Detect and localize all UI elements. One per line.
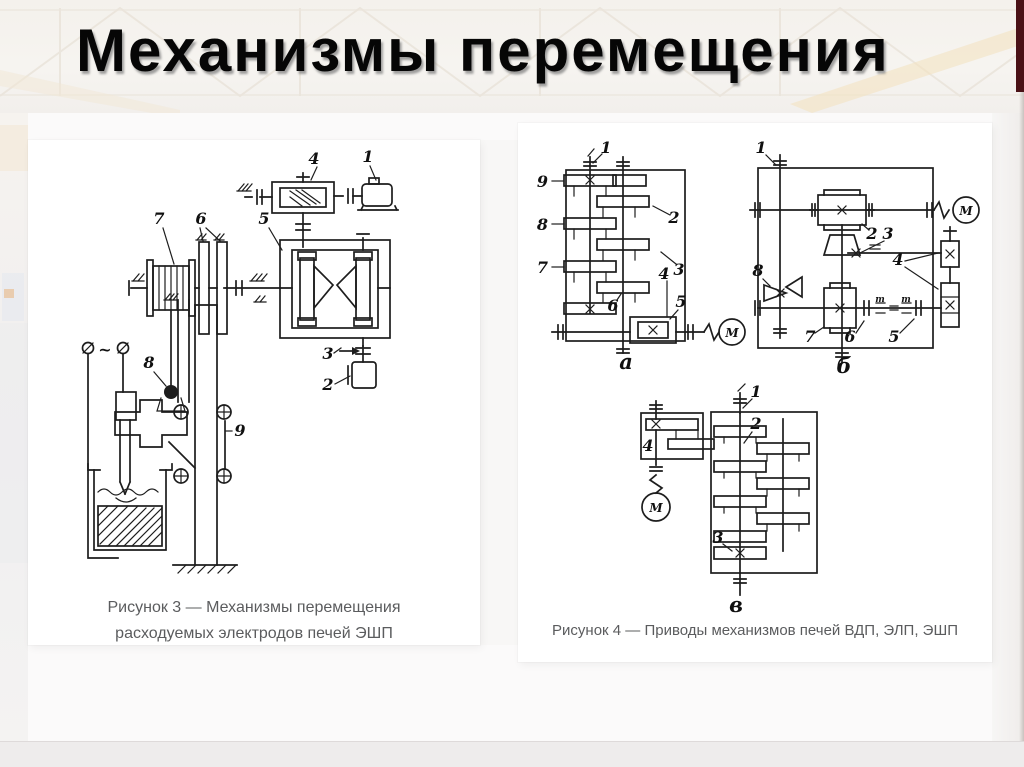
figure4-b-label-3: 3 [882,224,893,243]
figure3-label-4: 4 [308,149,319,168]
figure4-a-label-7: 7 [537,258,548,277]
figure4-subdiagram-v: М 4 1 2 3 [641,382,817,615]
worm-gearbox [237,173,334,213]
figure4-b-label-4: 4 [892,250,903,269]
figure4-a-label-2: 2 [667,208,679,227]
figure4-b-label-5: 5 [888,327,899,346]
figure4-a-label-6: 6 [607,296,618,315]
figure4-v-label-3: 3 [712,528,723,547]
guide-rollers [174,405,231,483]
motor-icon [358,178,398,210]
figure4-subdiagram-b: М 1 2 3 8 [750,138,979,378]
figure3-caption-line1: Рисунок 3 — Механизмы перемещения [28,595,480,621]
figure3-label-1: 1 [362,147,373,166]
left-margin-decor [0,113,28,742]
right-edge-shadow [1019,92,1024,742]
figure4-caption: Рисунок 4 — Приводы механизмов печей ВДП… [518,622,992,639]
figure3-caption-line2: расходуемых электродов печей ЭШП [28,621,480,647]
figure4-v-label-1: 1 [750,382,761,401]
figure3-label-6: 6 [195,209,206,228]
slide-title: Механизмы перемещения [76,16,976,85]
background-left-margin [0,113,28,742]
figure3-label-5: 5 [258,209,269,228]
figure3-label-ac: ~ [98,340,111,359]
figure3-label-2: 2 [321,375,333,394]
figure4-a-motor-label: М [724,326,739,340]
figure4-a-label-8: 8 [536,215,548,234]
figure4-drawing: М 1 9 8 7 2 3 4 6 5 а [518,123,992,615]
figure4-b-label-6: 6 [844,327,855,346]
figure4-b-motor-label: М [958,204,973,218]
figure4-a-sublabel: а [619,349,633,374]
figure3-caption: Рисунок 3 — Механизмы перемещения расход… [28,595,480,646]
footer-bar [0,741,1024,767]
accent-stripe [1016,0,1024,92]
figure4-a-label-9: 9 [537,172,548,191]
figure4-a-label-5: 5 [675,292,686,311]
figure4-b-screw-label-left: m [875,295,885,305]
figure4-v-label-4: 4 [642,436,653,455]
figure4-b-label-1: 1 [755,138,766,157]
figure3-drawing: 4 1 5 [28,140,480,590]
slide: Механизмы перемещения 4 [0,0,1024,767]
figure3-label-8: 8 [142,353,154,372]
figure4-subdiagram-a: М 1 9 8 7 2 3 4 6 5 а [536,138,745,374]
figure3-label-7: 7 [153,209,164,228]
figure4-b-label-2: 2 [865,224,877,243]
figure4-b-label-7: 7 [804,327,815,346]
figure4-a-label-4: 4 [658,264,669,283]
figure4-v-motor-label: М [648,501,663,515]
background-mid-gap [480,140,518,645]
figure4-b-sublabel: б [836,353,851,378]
planetary-gearbox [280,234,390,346]
figure4-v-sublabel: в [729,592,743,615]
figure3-label-9: 9 [234,421,245,440]
figure4-b-screw-label-right: m [901,295,911,305]
figure3-panel: 4 1 5 [28,140,480,645]
figure3-label-3: 3 [322,344,333,363]
figure4-v-label-2: 2 [749,414,761,433]
figure4-b-label-8: 8 [751,261,763,280]
figure4-panel: М 1 9 8 7 2 3 4 6 5 а [518,123,992,662]
